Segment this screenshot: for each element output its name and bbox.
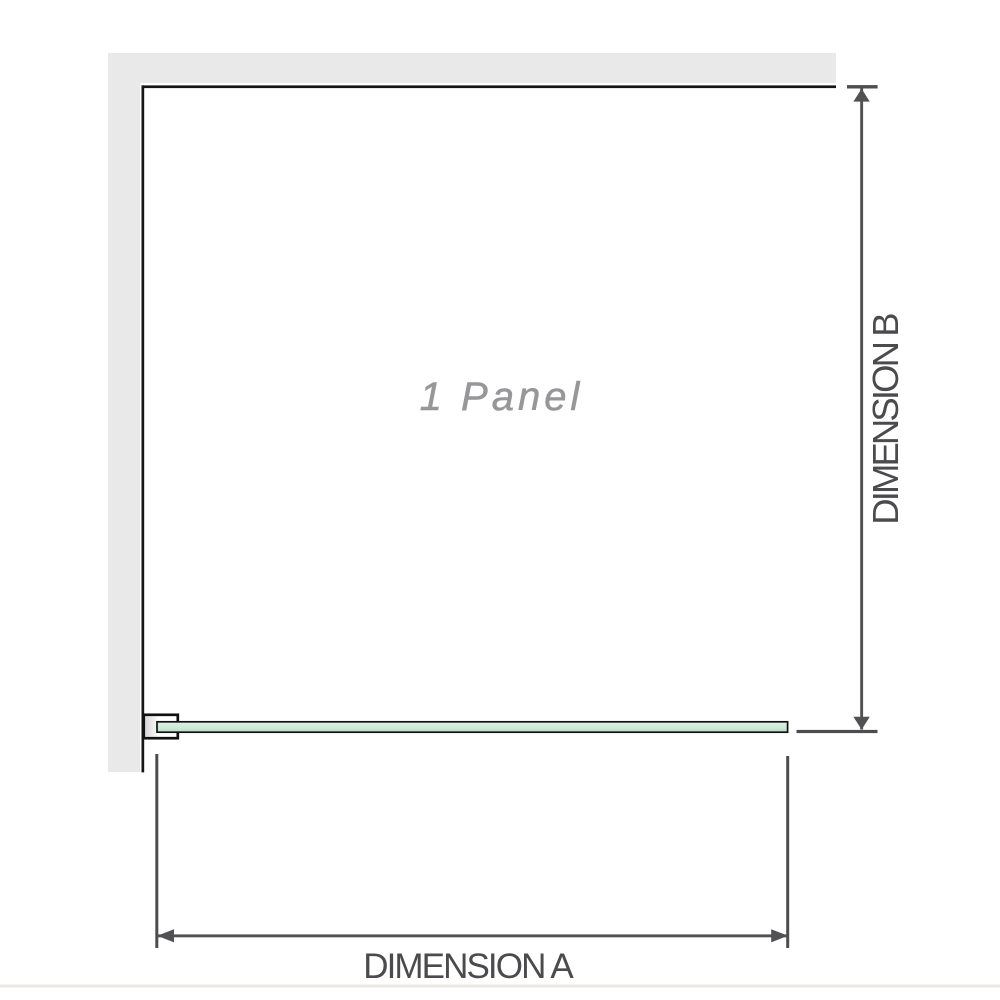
svg-text:DIMENSION A: DIMENSION A [363,947,574,986]
svg-text:1 Panel: 1 Panel [420,375,584,419]
svg-text:DIMENSION B: DIMENSION B [865,314,906,525]
